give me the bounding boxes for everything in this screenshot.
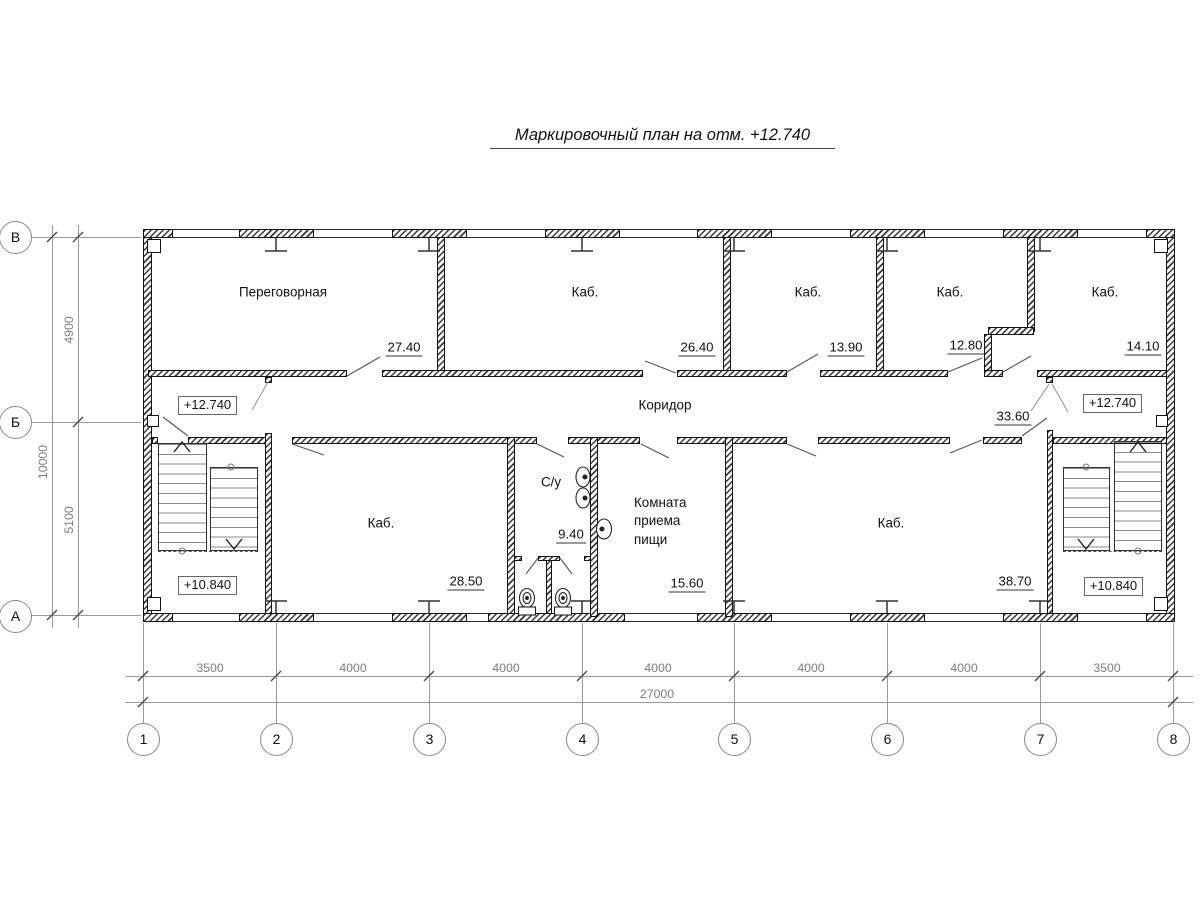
partition-wall-l-shape — [984, 334, 992, 371]
dim-value: 4000 — [950, 661, 977, 675]
wall-panel — [392, 229, 467, 238]
wc-stall-front — [538, 556, 560, 561]
column-i-sections-top — [265, 238, 1051, 251]
room-label-koridor: Коридор — [639, 398, 692, 413]
room-area: 27.40 — [385, 340, 422, 357]
stair-flight — [158, 443, 207, 551]
room-area: 9.40 — [556, 527, 586, 544]
room-label-komnata: Комната приема пищи — [634, 494, 686, 549]
dim-value: 4000 — [797, 661, 824, 675]
stair-cut-line — [1063, 551, 1162, 552]
wall-panel — [850, 613, 925, 622]
dim-value: 4000 — [339, 661, 366, 675]
wall-panel — [1146, 613, 1175, 622]
wall-panel — [1146, 229, 1175, 238]
room-area: 38.70 — [996, 574, 1033, 591]
column-i-sections-bottom — [265, 601, 1051, 613]
wall-stub — [1046, 377, 1053, 383]
column-mark — [1154, 597, 1168, 611]
dim-value: 3500 — [196, 661, 223, 675]
wall-panel — [1003, 229, 1078, 238]
column-mark — [147, 597, 161, 611]
axis-bubble-2: 2 — [260, 723, 293, 756]
room-area: 14.10 — [1124, 339, 1161, 356]
room-label-peregovornaya: Переговорная — [239, 285, 327, 300]
corridor-wall — [983, 437, 1022, 444]
stair-flight — [210, 467, 258, 551]
elevation-mark: +10.840 — [178, 576, 237, 595]
dim-value: 4000 — [492, 661, 519, 675]
room-label-kab: Каб. — [937, 285, 964, 300]
corridor-wall — [148, 370, 347, 377]
dim-value: 4900 — [62, 316, 76, 343]
room-label-kab: Каб. — [572, 285, 599, 300]
room-label-kab: Каб. — [795, 285, 822, 300]
door-leaf-lines — [163, 354, 1047, 574]
wall-panel — [545, 229, 620, 238]
partition-wall-l-shape — [1027, 237, 1035, 332]
wall-panel — [239, 613, 314, 622]
wall-panel — [850, 229, 925, 238]
axis-bubble-3: 3 — [413, 723, 446, 756]
dimension-line — [52, 225, 53, 628]
stair-cut-line — [158, 551, 258, 552]
elevation-mark: +10.840 — [1084, 577, 1143, 596]
dimension-line — [78, 225, 79, 628]
toilet-icon — [519, 589, 572, 616]
wall-panel — [239, 229, 314, 238]
wall-panel — [143, 613, 173, 622]
column-mark — [147, 239, 161, 253]
room-label-kab: Каб. — [878, 516, 905, 531]
corridor-wall — [1037, 370, 1167, 377]
dimension-line — [125, 676, 1193, 677]
axis-bubble-1: 1 — [127, 723, 160, 756]
dimension-line — [125, 702, 1193, 703]
axis-bubble-v: В — [0, 221, 32, 254]
partition-wall-l-shape — [988, 327, 1034, 335]
wall-stub — [265, 377, 272, 383]
axis-bubble-5: 5 — [718, 723, 751, 756]
axis-bubble-b: Б — [0, 406, 32, 439]
corridor-wall — [820, 370, 948, 377]
stairwell-wall — [265, 433, 272, 614]
stair-flight — [1114, 441, 1162, 551]
dim-value: 3500 — [1093, 661, 1120, 675]
room-area: 26.40 — [678, 340, 715, 357]
corridor-wall — [818, 437, 950, 444]
axis-bubble-4: 4 — [566, 723, 599, 756]
partition-wall — [725, 437, 733, 617]
room-area: 28.50 — [447, 574, 484, 591]
dim-value: 5100 — [62, 506, 76, 533]
room-label-kab: Каб. — [1092, 285, 1119, 300]
corridor-wall — [677, 370, 787, 377]
partition-wall — [507, 437, 515, 614]
wall-panel — [697, 613, 772, 622]
axis-bubble-7: 7 — [1024, 723, 1057, 756]
elevation-mark: +12.740 — [1083, 394, 1142, 413]
room-label-su: С/у — [541, 475, 561, 490]
wc-stall-partition — [546, 556, 552, 614]
drawing-title: Маркировочный план на отм. +12.740 — [490, 126, 835, 149]
room-area: 15.60 — [668, 576, 705, 593]
wall-panel — [697, 229, 772, 238]
partition-wall — [723, 237, 731, 371]
elevation-mark: +12.740 — [178, 396, 237, 415]
stairwell-wall — [1047, 430, 1053, 614]
partition-wall — [876, 237, 884, 371]
corridor-wall — [568, 437, 640, 444]
room-label-kab: Каб. — [368, 516, 395, 531]
axis-bubble-6: 6 — [871, 723, 904, 756]
corridor-wall — [382, 370, 643, 377]
column-mark — [1156, 415, 1168, 427]
partition-wall — [590, 437, 598, 617]
wall-panel — [392, 613, 467, 622]
wall-panel — [143, 229, 173, 238]
axis-bubble-8: 8 — [1157, 723, 1190, 756]
column-mark — [147, 415, 159, 427]
wc-stall-front — [514, 556, 522, 561]
partition-wall — [437, 237, 445, 371]
wc-stall-front — [584, 556, 591, 561]
corridor-wall — [984, 370, 1003, 377]
dim-total: 27000 — [640, 687, 674, 701]
floor-plan-canvas: Маркировочный план на отм. +12.740 — [0, 0, 1200, 900]
wall-panel — [488, 613, 625, 622]
wall-panel — [1003, 613, 1078, 622]
column-mark — [1154, 239, 1168, 253]
stair-flight — [1063, 467, 1110, 551]
axis-bubble-a: А — [0, 600, 32, 633]
room-area: 13.90 — [827, 340, 864, 357]
corridor-wall — [292, 437, 537, 444]
room-area: 12.80 — [947, 338, 984, 355]
dim-value: 4000 — [644, 661, 671, 675]
dim-total: 10000 — [36, 445, 50, 479]
room-area: 33.60 — [994, 409, 1031, 426]
